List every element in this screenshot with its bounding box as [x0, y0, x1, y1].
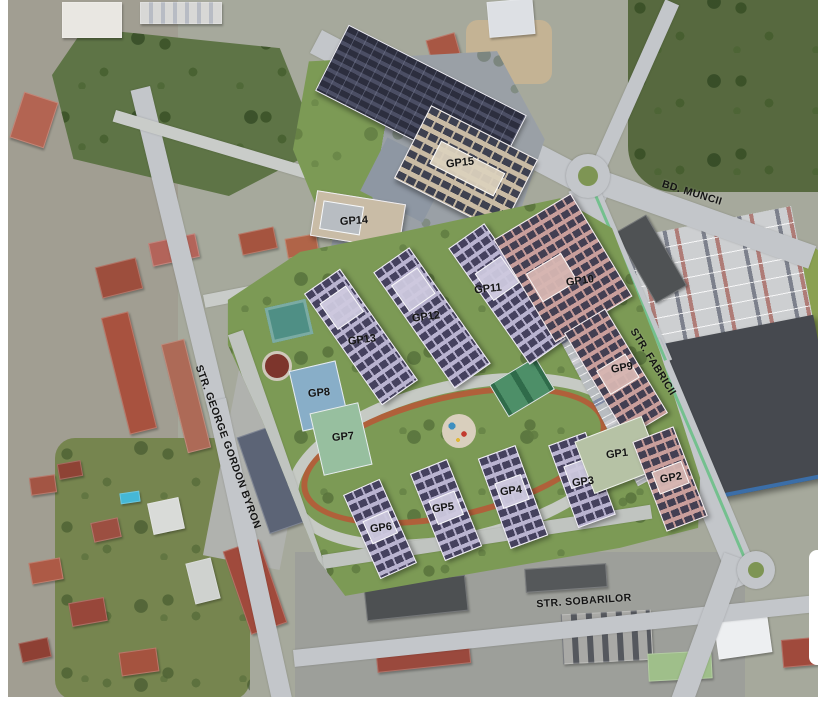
house-roof	[29, 474, 57, 495]
round-garden	[262, 351, 292, 381]
house-roof	[238, 226, 278, 255]
roundabout-island	[578, 166, 598, 186]
warehouse-roof	[62, 2, 122, 38]
page-margin-left	[0, 0, 8, 707]
roundabout-north	[566, 154, 610, 198]
building-label-gp8: GP8	[308, 386, 331, 400]
roof-label-area	[320, 286, 364, 330]
roundabout-south	[737, 551, 775, 589]
page-margin-bottom	[0, 697, 818, 707]
building-label-gp7: GP7	[332, 430, 355, 444]
building-label-gp14: GP14	[340, 214, 369, 228]
site-plan-aerial-view: GP1 GP2 GP3 GP4 GP5 GP6 GP7 GP8 GP9 GP10…	[0, 0, 818, 707]
page-margin-right-notch	[809, 550, 818, 665]
roundabout-island	[748, 562, 764, 578]
white-building-roof	[487, 0, 536, 38]
white-building-roof	[147, 497, 185, 535]
truck-parking	[140, 2, 222, 24]
playground	[442, 414, 476, 448]
